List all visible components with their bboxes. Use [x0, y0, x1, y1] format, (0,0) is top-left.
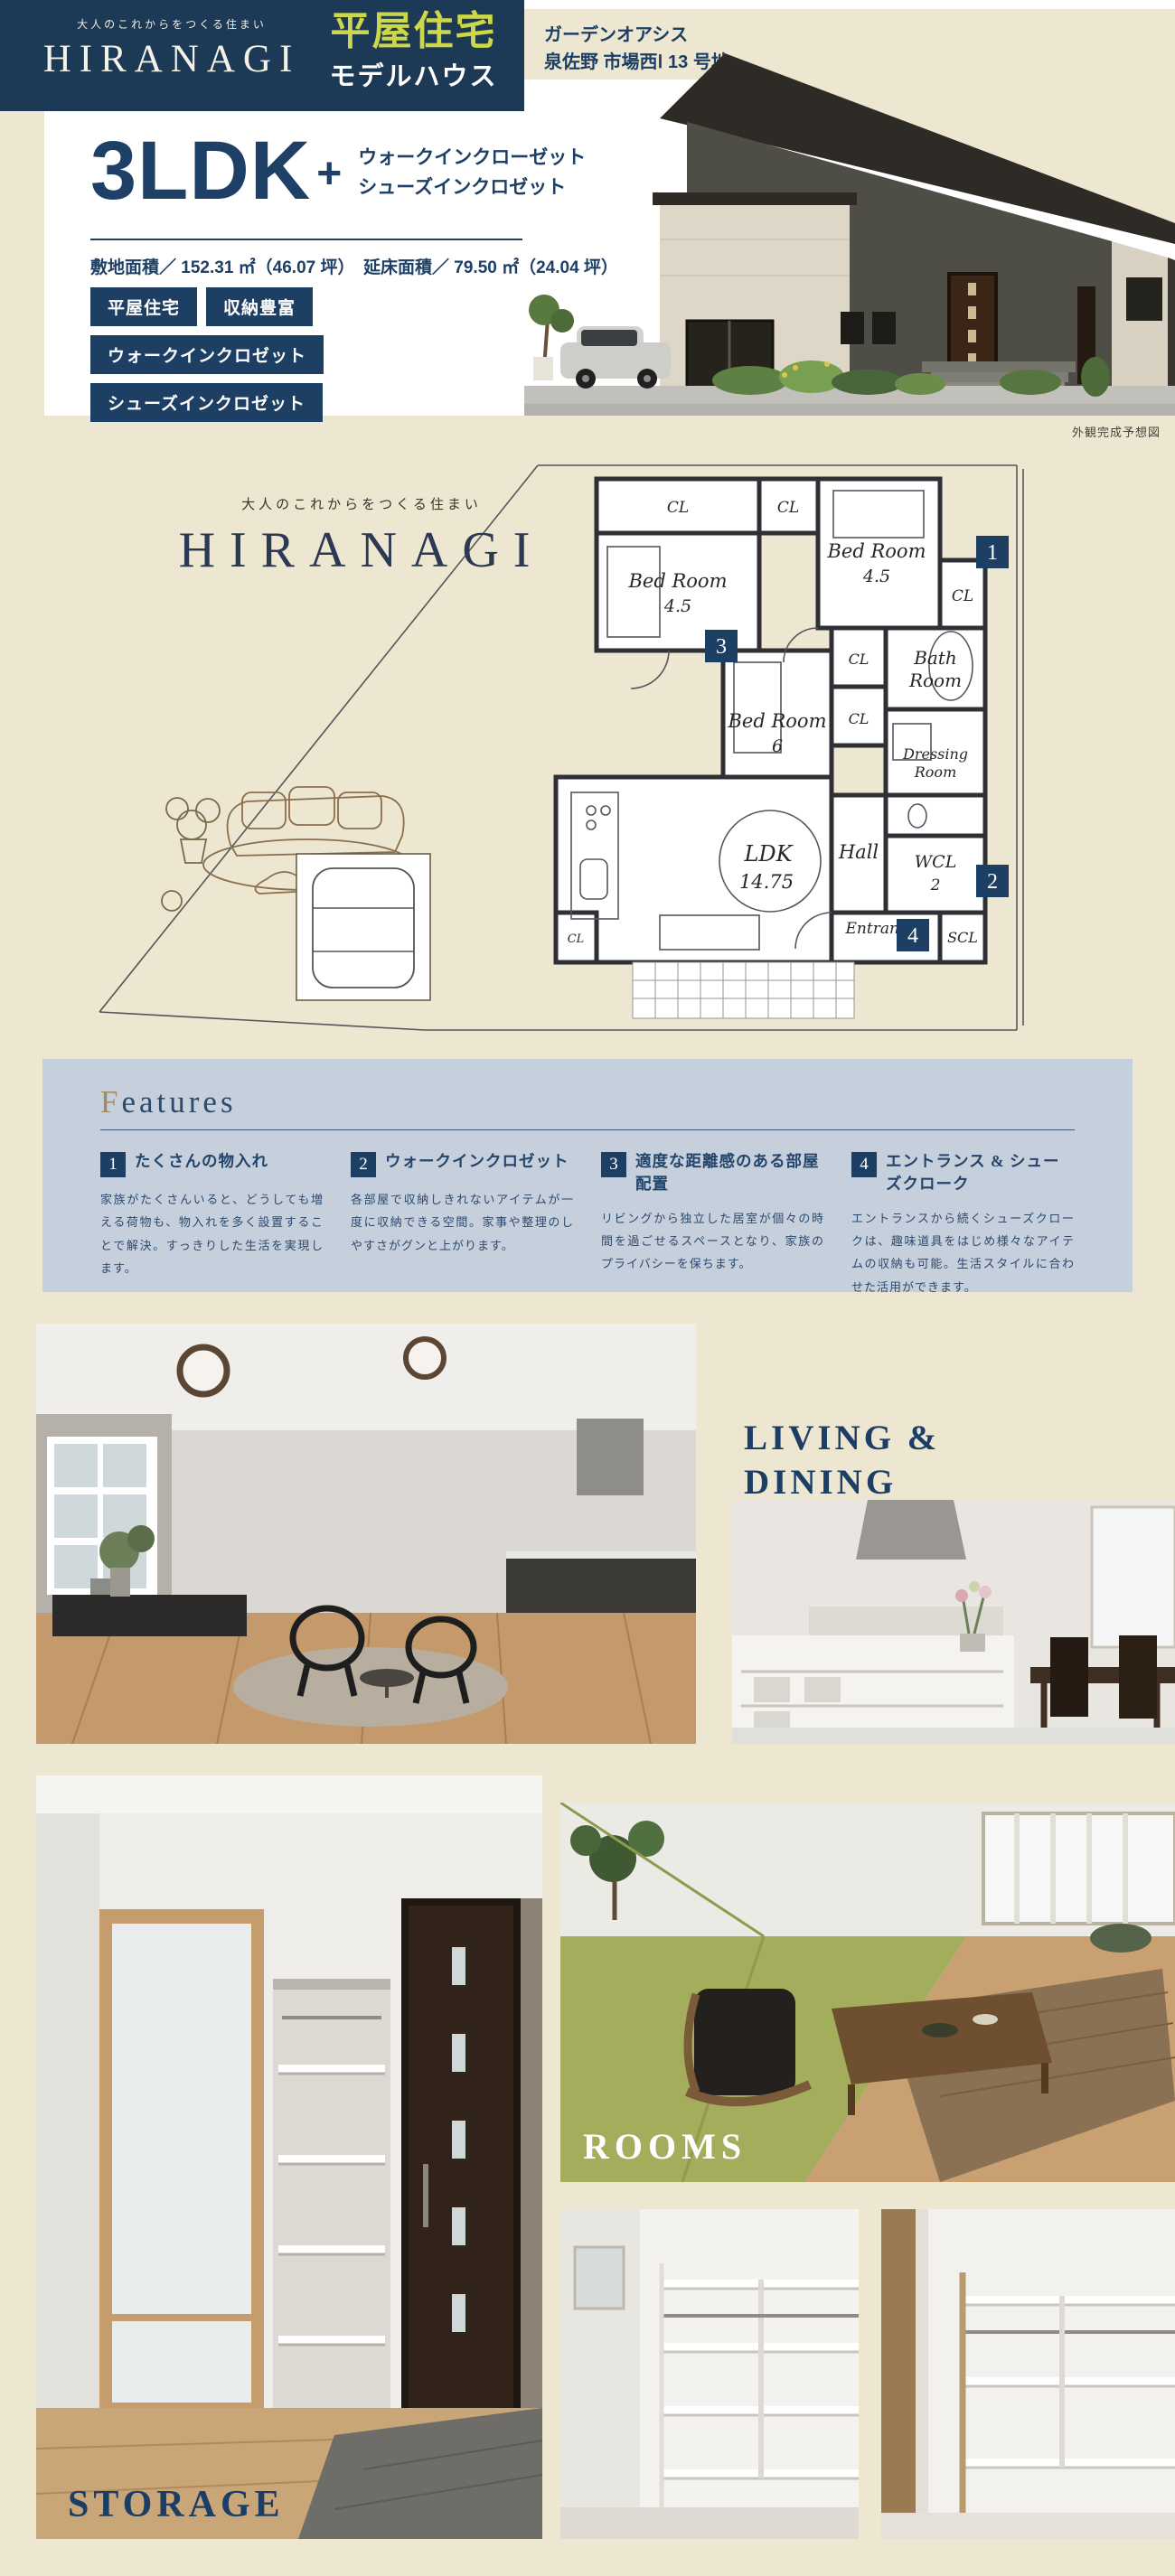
range-hood [577, 1419, 644, 1495]
round-rug [233, 1647, 508, 1727]
top-white-strip [524, 0, 1175, 9]
living-heading-line2: DINING [744, 1461, 940, 1505]
feature-1-title: たくさんの物入れ [135, 1150, 268, 1173]
feature-4-number: 4 [851, 1152, 877, 1177]
hero-divider [90, 239, 522, 240]
feature-4-body: エントランスから続くシューズクロークは、趣味道具をはじめ様々なアイテムの収納も可… [851, 1207, 1075, 1298]
label-cl-mid2: CL [849, 710, 869, 727]
model-house-badge: 平屋住宅 モデルハウス [312, 9, 515, 93]
label-wcl: WCL [915, 852, 957, 872]
house-exterior-illustration [524, 50, 1175, 416]
entrance-door-dark [401, 1898, 521, 2435]
flyer-page: 大人のこれからをつくる住まい HIRANAGI 平屋住宅 モデルハウス ガーデン… [0, 0, 1175, 2576]
features-section: Features 1 たくさんの物入れ 家族がたくさんいると、どうしても増える荷… [42, 1059, 1133, 1292]
parking-sketch [296, 854, 430, 1000]
label-bed-a: Bed Room [628, 570, 728, 592]
dining-range-hood [856, 1500, 966, 1560]
closet-floor-2 [881, 2513, 1175, 2539]
kitchen-island [506, 1557, 696, 1615]
label-cl-ldk: CL [568, 932, 585, 946]
closet-door-frame [881, 2209, 916, 2539]
door-side-shadow [521, 1898, 542, 2435]
dining-window [1092, 1507, 1175, 1647]
label-ldk: LDK [743, 841, 794, 866]
feature-item-3: 3 適度な距離感のある部屋配置 リビングから独立した居室が個々の時間を過ごせるス… [601, 1150, 824, 1298]
label-bath-2: Room [908, 670, 962, 691]
tag-wic: ウォークインクロゼット [90, 335, 324, 374]
label-cl-right: CL [952, 587, 973, 605]
closet-window [575, 2247, 624, 2309]
feature-item-1: 1 たくさんの物入れ 家族がたくさんいると、どうしても増える荷物も、物入れを多く… [100, 1150, 324, 1298]
feature-4-title: エントランス & シューズクローク [886, 1150, 1075, 1196]
label-cl-a: CL [667, 499, 689, 517]
porch-grid [633, 962, 854, 1018]
walk-in-closet-photo-2 [881, 2209, 1175, 2539]
feature-item-4: 4 エントランス & シューズクローク エントランスから続くシューズクロークは、… [851, 1150, 1075, 1298]
side-window [1126, 277, 1162, 321]
hallway-storage-photo [36, 1775, 542, 2539]
location-line1: ガーデンオアシス [544, 22, 1175, 49]
label-bed-c-size: 6 [772, 736, 783, 756]
storage-label: STORAGE [68, 2483, 285, 2526]
plan-badge-2: 2 [987, 870, 998, 894]
garage-block [653, 192, 857, 391]
brand-tagline: 大人のこれからをつくる住まい [36, 16, 307, 32]
plan-summary: 3LDK + ウォークインクローゼット シューズインクロゼット [90, 129, 586, 212]
rooms-label: ROOMS [583, 2125, 747, 2168]
label-wcl-size: 2 [930, 876, 941, 895]
features-divider [100, 1129, 1075, 1130]
badge-model-house: モデルハウス [312, 55, 515, 93]
label-scl: SCL [947, 929, 978, 946]
label-cl-mid1: CL [849, 651, 869, 668]
label-dress-1: Dressing [902, 745, 968, 763]
brand-logo: 大人のこれからをつくる住まい HIRANAGI [36, 16, 307, 81]
living-room-photo [36, 1324, 696, 1744]
small-window-1 [841, 312, 864, 344]
plan-brand: HIRANAGI [179, 522, 545, 578]
plan-plus: + [316, 153, 342, 196]
plan-badge-3: 3 [716, 635, 727, 659]
plan-badge-4: 4 [907, 924, 918, 948]
feature-item-2: 2 ウォークインクロゼット 各部屋で収納しきれないアイテムが一度に収納できる空間… [351, 1150, 574, 1298]
features-title: Features [100, 1084, 1075, 1120]
tatami-window [983, 1813, 1175, 1924]
right-wall-edge [1168, 258, 1175, 391]
label-bed-b-size: 4.5 [862, 567, 890, 586]
living-heading-line1: LIVING & [744, 1417, 940, 1461]
walk-in-closet-photo-1 [560, 2209, 859, 2539]
plan-badge-1: 1 [987, 541, 998, 565]
label-bed-c: Bed Room [728, 710, 827, 732]
badge-hiraya: 平屋住宅 [312, 9, 515, 55]
floor-chair [687, 1989, 810, 2102]
feature-1-body: 家族がたくさんいると、どうしても増える荷物も、物入れを多く設置することで解決。す… [100, 1188, 324, 1279]
tag-hiraya: 平屋住宅 [90, 287, 197, 326]
feature-3-number: 3 [601, 1152, 626, 1177]
label-dress-2: Room [914, 763, 956, 781]
feature-tags: 平屋住宅 収納豊富 ウォークインクロゼット シューズインクロゼット [90, 287, 533, 422]
cushion [1090, 1924, 1151, 1953]
road [524, 404, 1175, 416]
living-window [47, 1437, 157, 1595]
feature-2-number: 2 [351, 1152, 376, 1177]
feature-3-title: 適度な距離感のある部屋配置 [635, 1150, 824, 1196]
label-cl-top: CL [777, 499, 799, 517]
living-dining-heading: LIVING & DINING [744, 1417, 940, 1505]
tag-sic: シューズインクロゼット [90, 383, 323, 422]
small-window-2 [872, 312, 896, 344]
features-columns: 1 たくさんの物入れ 家族がたくさんいると、どうしても増える荷物も、物入れを多く… [100, 1150, 1075, 1298]
tag-storage: 収納豊富 [206, 287, 313, 326]
floor-plan-drawing: 大人のこれからをつくる住まい HIRANAGI [36, 456, 1139, 1039]
car-illustration [560, 326, 671, 389]
brand-name: HIRANAGI [36, 37, 307, 81]
closet-floor-1 [560, 2507, 859, 2539]
label-bed-b: Bed Room [827, 540, 926, 562]
sliding-frosted-door [99, 1909, 264, 2417]
plan-tagline: 大人のこれからをつくる住まい [241, 497, 482, 512]
dining-kitchen-photo [732, 1500, 1175, 1744]
label-bed-a-size: 4.5 [663, 596, 691, 616]
label-bath-1: Bath [913, 647, 957, 669]
header-bar: 大人のこれからをつくる住まい HIRANAGI 平屋住宅 モデルハウス [0, 0, 524, 111]
feature-3-body: リビングから独立した居室が個々の時間を過ごせるスペースとなり、家族のプライバシー… [601, 1207, 824, 1276]
label-hall: Hall [838, 841, 879, 863]
feature-2-body: 各部屋で収納しきれないアイテムが一度に収納できる空間。家事や整理のしやすさがグン… [351, 1188, 574, 1257]
exterior-caption: 外観完成予想図 [1072, 423, 1161, 440]
feature-1-number: 1 [100, 1152, 126, 1177]
label-ldk-size: 14.75 [739, 871, 794, 893]
open-closet-shelves [273, 1979, 390, 2417]
plan-title: 3LDK [90, 129, 311, 212]
feature-2-title: ウォークインクロゼット [385, 1150, 569, 1173]
